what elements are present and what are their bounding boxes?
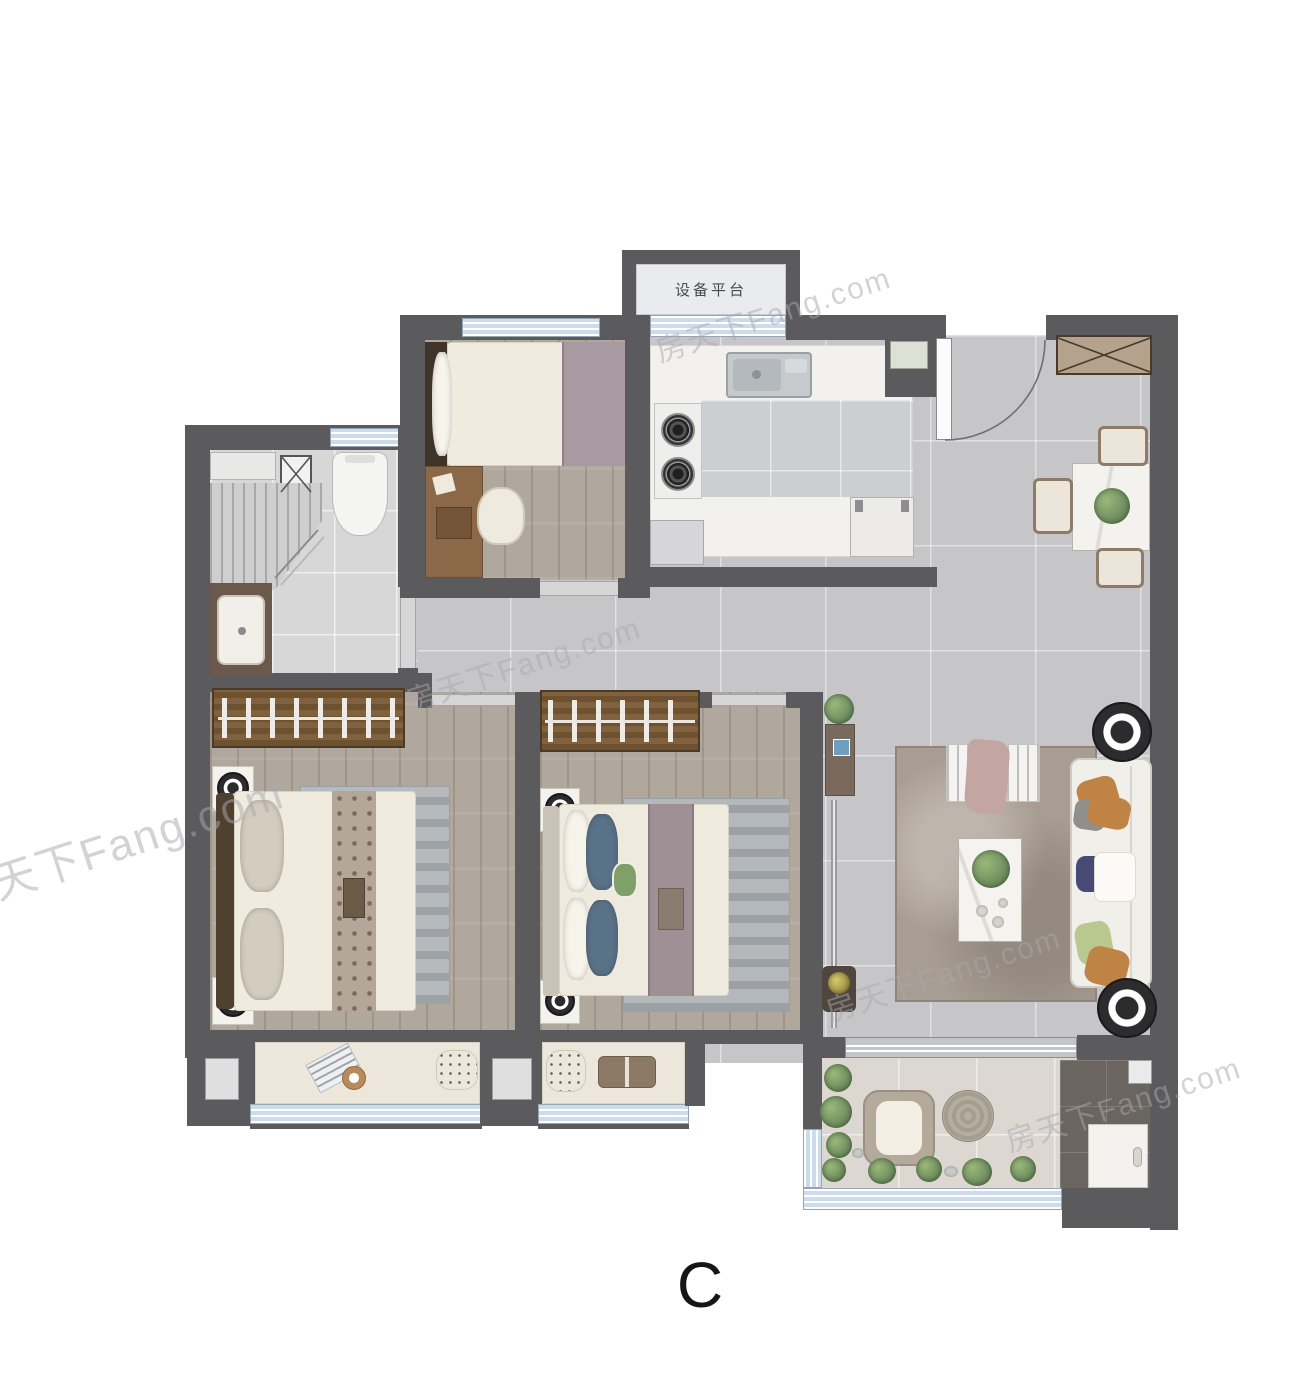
floor-plan-image: 设备平台 bbox=[0, 0, 1302, 1400]
plan-overlay bbox=[0, 0, 1302, 1400]
shower-glass-2 bbox=[281, 537, 324, 585]
entry-door-arc bbox=[945, 340, 1045, 440]
unit-label: C bbox=[640, 1248, 760, 1322]
shower-glass-1 bbox=[275, 530, 318, 578]
